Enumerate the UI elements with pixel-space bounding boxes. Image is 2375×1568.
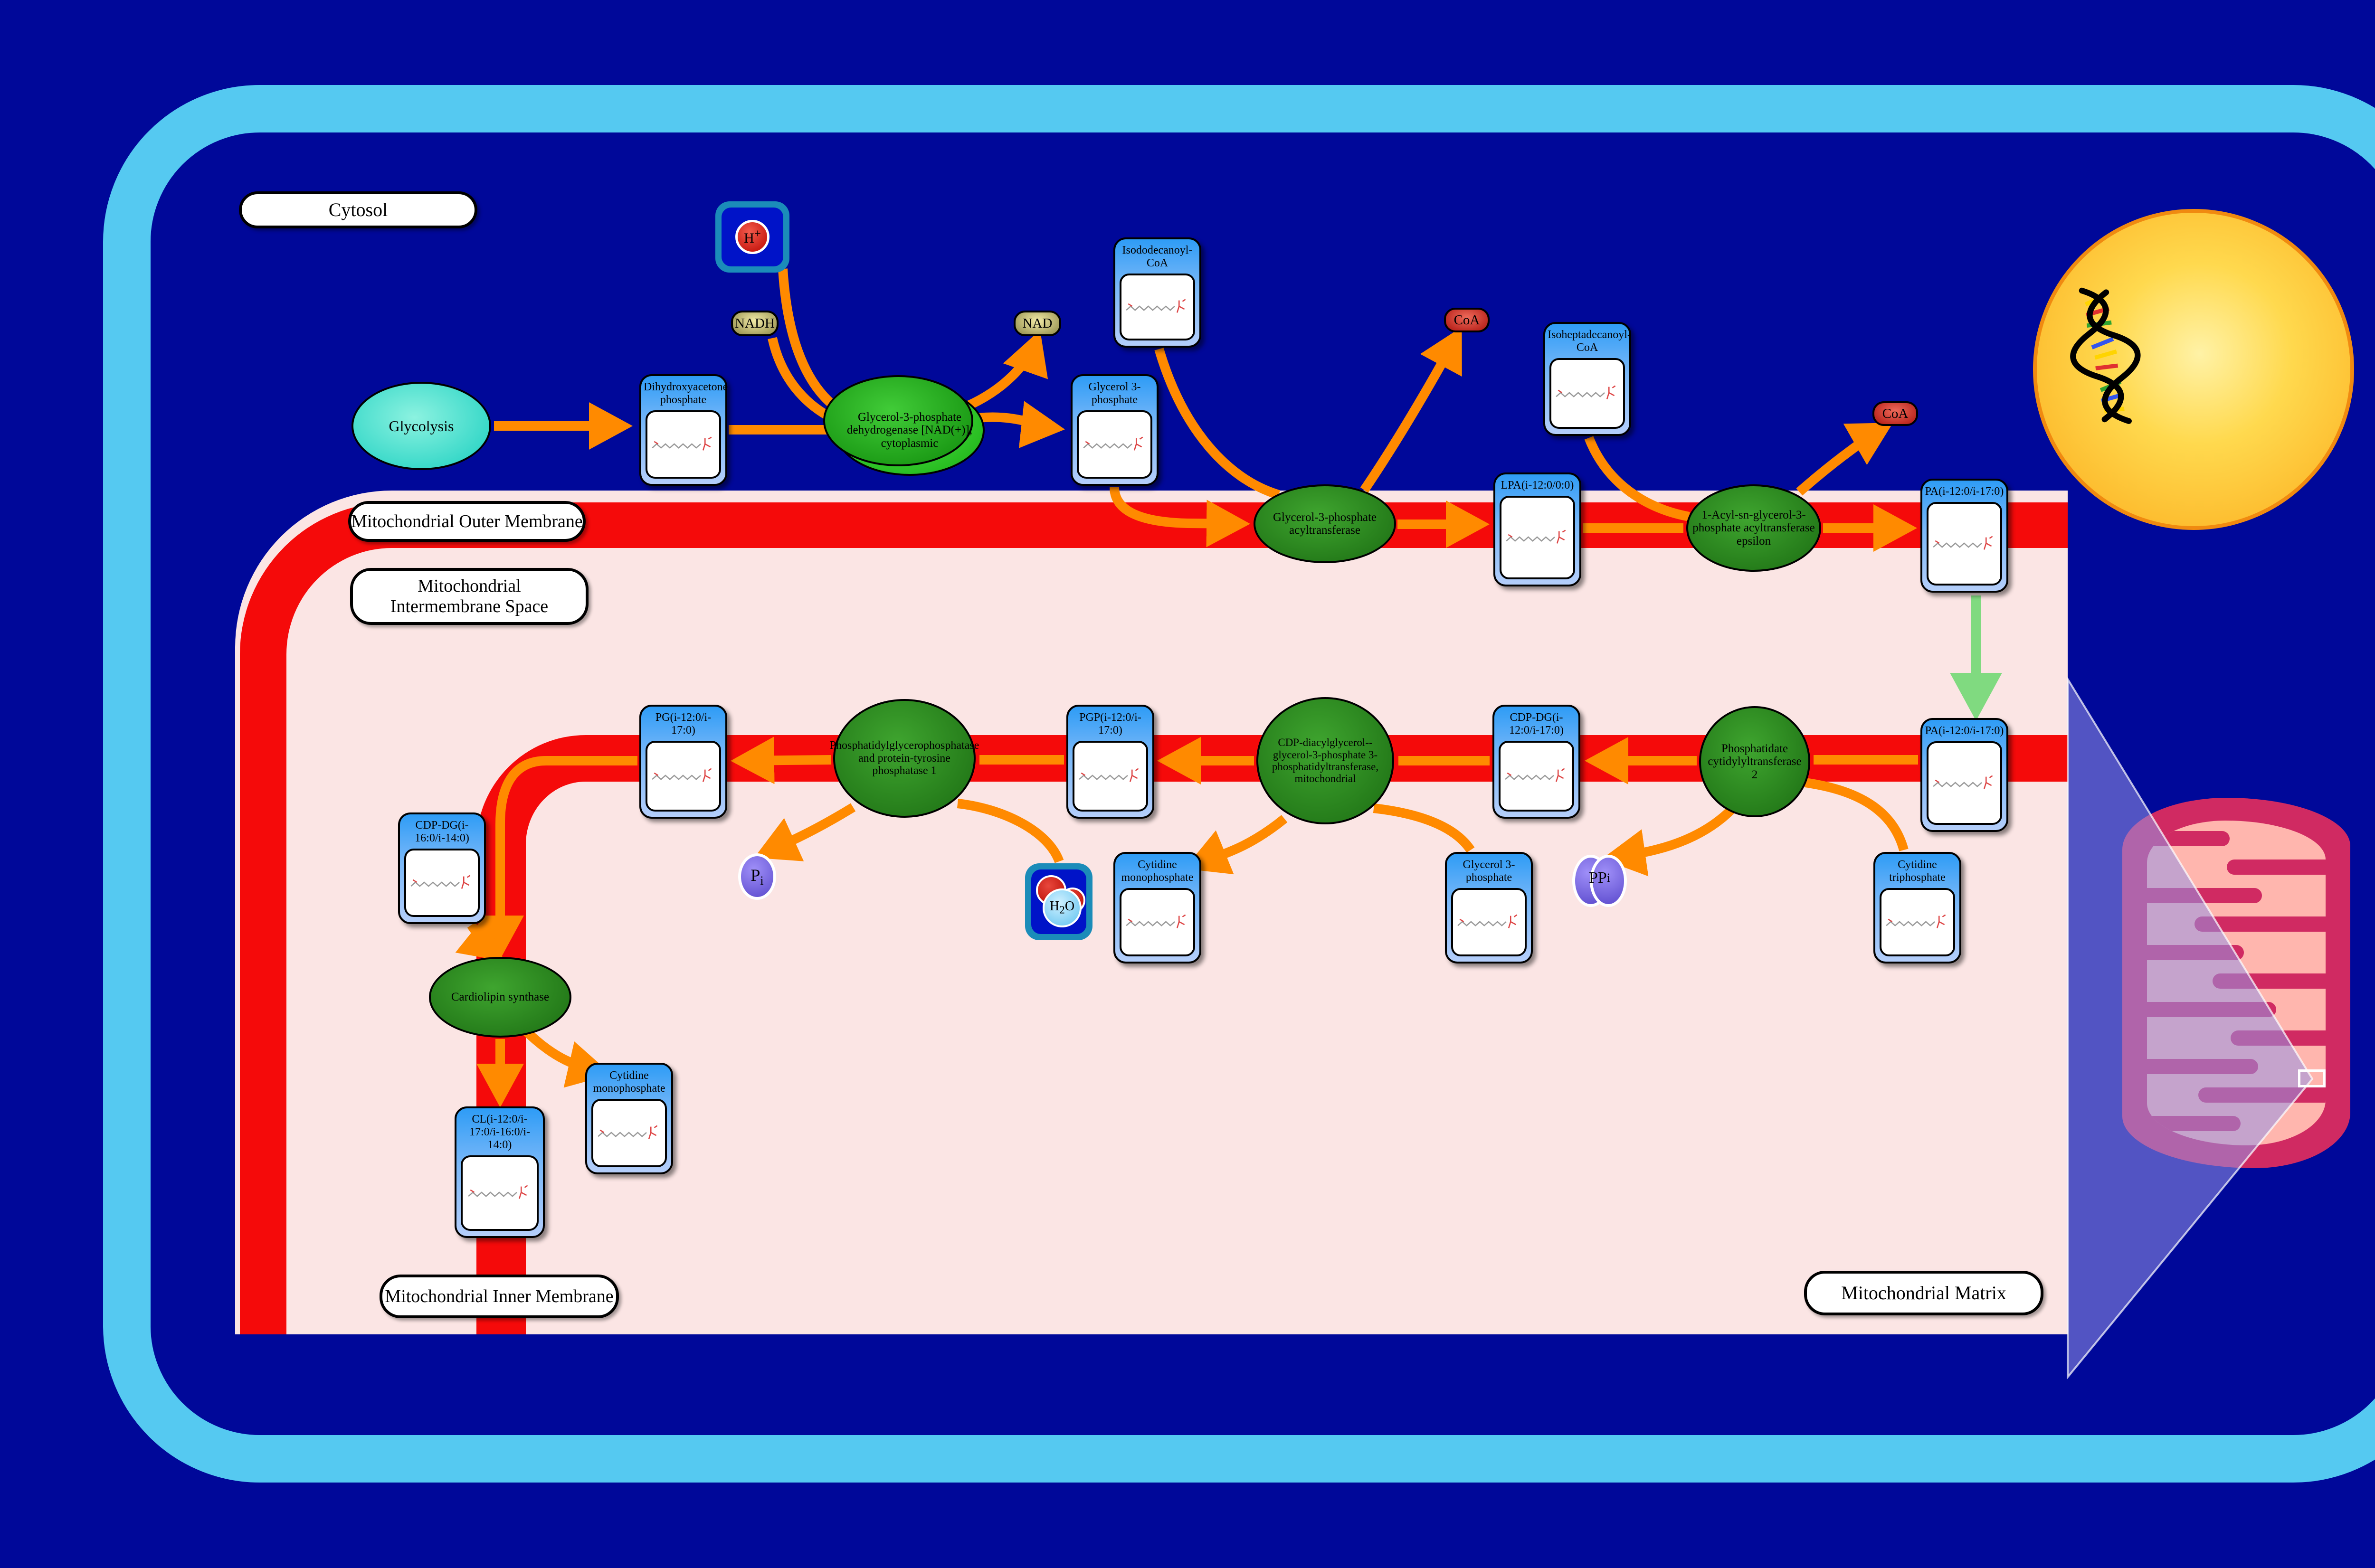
compound-isododecanoyl-coa[interactable]: Isododecanoyl-CoA xyxy=(1113,237,1201,348)
molecule-structure xyxy=(1882,905,1953,939)
compound-pgp[interactable]: PGP(i-12:0/i-17:0) xyxy=(1066,705,1154,819)
molecule-structure xyxy=(1929,766,2000,800)
hydrogen-ion-icon[interactable]: H+ xyxy=(715,201,789,273)
molecule-structure xyxy=(648,427,719,462)
water-formula-circle: H2O xyxy=(1043,888,1082,927)
reaction-arrows xyxy=(0,0,2375,1568)
molecule-structure xyxy=(1929,527,2000,561)
enzyme-pgp-phosphatase[interactable]: Phosphatidylglycerophosphatase and prote… xyxy=(833,699,976,818)
cofactor-coa-1[interactable]: CoA xyxy=(1444,308,1490,332)
molecule-structure xyxy=(594,1116,665,1150)
compound-cdp-dg-16-14[interactable]: CDP-DG(i-16:0/i-14:0) xyxy=(398,812,486,924)
compound-g3p-cytosol[interactable]: Glycerol 3-phosphate xyxy=(1071,374,1159,486)
molecule-structure xyxy=(464,1176,535,1210)
cofactor-coa-2[interactable]: CoA xyxy=(1872,401,1918,426)
enzyme-pct2[interactable]: Phosphatidate cytidylyltransferase 2 xyxy=(1699,706,1810,817)
label-cytosol: Cytosol xyxy=(239,191,477,228)
label-inner-membrane: Mitochondrial Inner Membrane xyxy=(380,1275,619,1318)
molecule-structure xyxy=(1502,520,1573,555)
compound-pa-outer[interactable]: PA(i-12:0/i-17:0) xyxy=(1920,479,2008,593)
cofactor-nadh[interactable]: NADH xyxy=(731,311,779,336)
compound-cdp-dg-12-17[interactable]: CDP-DG(i-12:0/i-17:0) xyxy=(1492,705,1580,819)
label-intermembrane-space: Mitochondrial Intermembrane Space xyxy=(350,568,589,625)
compound-cmp-2[interactable]: Cytidine monophosphate xyxy=(585,1063,673,1174)
enzyme-gpat[interactable]: Glycerol-3-phosphate acyltransferase xyxy=(1254,484,1396,563)
water-icon[interactable]: H2O xyxy=(1025,863,1092,940)
molecule-structure xyxy=(1122,905,1193,939)
label-matrix: Mitochondrial Matrix xyxy=(1804,1271,2043,1315)
pathway-glycolysis[interactable]: Glycolysis xyxy=(351,382,491,470)
molecule-structure xyxy=(1122,290,1193,324)
compound-cardiolipin[interactable]: CL(i-12:0/i-17:0/i-16:0/i-14:0) xyxy=(455,1106,545,1238)
compound-g3p-matrix[interactable]: Glycerol 3-phosphate xyxy=(1445,852,1533,963)
compound-lpa[interactable]: LPA(i-12:0/0:0) xyxy=(1493,472,1581,586)
ion-pi[interactable]: Pi xyxy=(738,853,776,900)
compound-ctp[interactable]: Cytidine triphosphate xyxy=(1873,852,1961,963)
enzyme-cdp-dag-g3p-transferase[interactable]: CDP-diacylglycerol--glycerol-3-phosphate… xyxy=(1256,697,1394,824)
label-outer-membrane: Mitochondrial Outer Membrane xyxy=(348,501,586,542)
molecule-structure xyxy=(1501,759,1572,793)
molecule-structure xyxy=(1453,905,1525,939)
cofactor-nad[interactable]: NAD xyxy=(1014,311,1061,336)
molecule-structure xyxy=(648,759,719,793)
compound-isoheptadecanoyl-coa[interactable]: Isoheptadecanoyl-CoA xyxy=(1543,322,1631,436)
molecule-structure xyxy=(1075,759,1146,793)
ion-ppi[interactable]: PPi xyxy=(1572,855,1627,901)
enzyme-agpat-epsilon[interactable]: 1-Acyl-sn-glycerol-3-phosphate acyltrans… xyxy=(1686,484,1821,572)
enzyme-cardiolipin-synthase[interactable]: Cardiolipin synthase xyxy=(429,957,571,1038)
compound-dhap[interactable]: Dihydroxyacetone phosphate xyxy=(639,374,727,486)
enzyme-g3p-dehydrogenase[interactable]: Glycerol-3-phosphate dehydrogenase [NAD(… xyxy=(835,385,985,476)
compound-pg[interactable]: PG(i-12:0/i-17:0) xyxy=(639,705,727,819)
compound-cmp-1[interactable]: Cytidine monophosphate xyxy=(1113,852,1201,963)
molecule-structure xyxy=(1552,376,1623,410)
compound-pa-inner[interactable]: PA(i-12:0/i-17:0) xyxy=(1920,718,2008,832)
molecule-structure xyxy=(1079,427,1150,462)
pathway-canvas: Cytosol Mitochondrial Outer Membrane Mit… xyxy=(0,0,2375,1568)
molecule-structure xyxy=(407,866,478,900)
